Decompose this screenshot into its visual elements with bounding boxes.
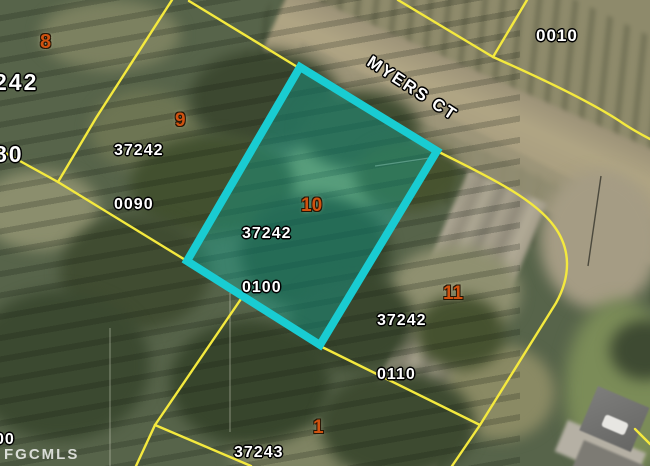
parcel-number-line: 0010 xyxy=(536,27,578,45)
parcel-number-line: 37242 xyxy=(377,312,427,330)
parcel-number-line: 0110 xyxy=(377,366,427,384)
parcel-number-line: 80 xyxy=(0,142,38,166)
lot-number-11: 11 xyxy=(443,283,463,305)
lot-number-9: 9 xyxy=(175,110,186,132)
parcel-label-0080-partial: 242 80 xyxy=(0,22,38,214)
parcel-label-top-right-partial: 0010 xyxy=(536,0,578,81)
parcel-number-line: 242 xyxy=(0,70,38,94)
parcel-number-line: 0100 xyxy=(242,279,292,297)
parcel-boundary-line xyxy=(398,0,527,57)
aerial-parcel-map: MYERS CT 242 80 8 37242 0090 9 37242 010… xyxy=(0,0,650,466)
lot-number-10: 10 xyxy=(301,195,322,217)
parcel-label-0110: 37242 0110 xyxy=(377,276,427,420)
parcel-label-0100-highlighted: 37242 0100 xyxy=(242,189,292,333)
parcel-boundary-line xyxy=(635,429,650,444)
parcel-boundary-line xyxy=(189,1,299,68)
parcel-number-line: 37242 xyxy=(114,142,164,160)
lot-number-8: 8 xyxy=(40,31,51,54)
parcel-label-0090: 37242 0090 xyxy=(114,106,164,250)
road-edge-boundary-line xyxy=(437,151,567,466)
fgcmls-watermark: FGCMLS xyxy=(4,446,79,463)
utility-pole-shadow xyxy=(588,176,601,266)
parcel-label-37243-0010: 37243 0010 xyxy=(234,408,284,466)
parcel-number-line: 37242 xyxy=(242,225,292,243)
lot-number-1: 1 xyxy=(313,417,324,439)
parcel-boundary-line xyxy=(136,425,155,466)
parcel-number-line: 37243 xyxy=(234,444,284,462)
parcel-number-line: 0090 xyxy=(114,196,164,214)
